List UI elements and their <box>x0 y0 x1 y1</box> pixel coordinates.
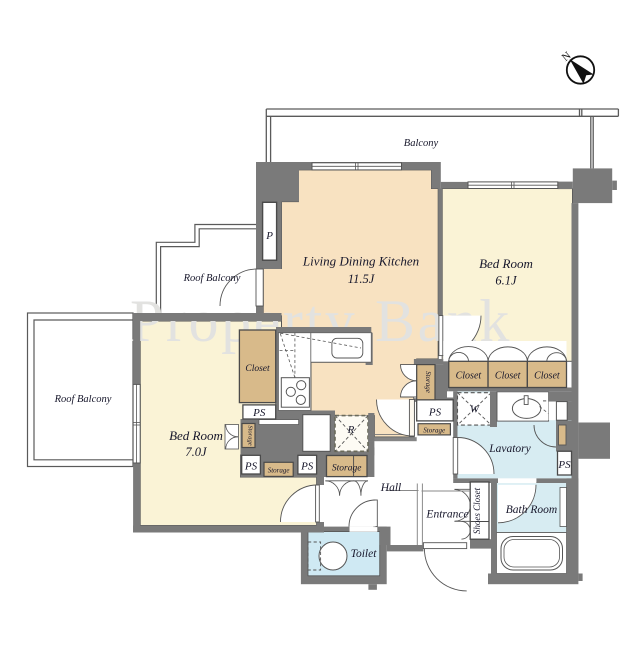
svg-text:Roof Balcony: Roof Balcony <box>183 273 241 284</box>
svg-text:Storage: Storage <box>424 371 432 393</box>
svg-text:Shoes Closet: Shoes Closet <box>472 487 482 534</box>
svg-text:PS: PS <box>244 461 258 473</box>
svg-text:Balcony: Balcony <box>404 138 439 149</box>
svg-text:PS: PS <box>428 407 442 419</box>
svg-text:W: W <box>470 404 480 416</box>
svg-text:Toilet: Toilet <box>351 548 378 560</box>
svg-text:PS: PS <box>557 459 571 471</box>
svg-text:11.5J: 11.5J <box>348 272 376 286</box>
svg-text:Closet: Closet <box>534 371 560 382</box>
svg-text:Bed Room: Bed Room <box>479 256 533 271</box>
svg-text:P: P <box>265 230 273 242</box>
svg-text:Storage: Storage <box>332 464 362 474</box>
svg-text:7.0J: 7.0J <box>185 445 208 459</box>
svg-text:Closet: Closet <box>495 371 521 382</box>
svg-text:PS: PS <box>300 461 314 473</box>
svg-text:Storage: Storage <box>247 425 254 445</box>
svg-text:Bed Room: Bed Room <box>169 428 223 443</box>
svg-text:Lavatory: Lavatory <box>488 443 531 455</box>
svg-text:Bath Room: Bath Room <box>506 504 557 516</box>
svg-text:Storage: Storage <box>268 467 290 475</box>
svg-text:Living Dining Kitchen: Living Dining Kitchen <box>302 254 419 269</box>
svg-text:PS: PS <box>252 407 266 419</box>
svg-text:Hall: Hall <box>380 482 401 494</box>
svg-text:Entrance: Entrance <box>425 509 468 521</box>
svg-text:R: R <box>347 424 355 436</box>
svg-text:6.1J: 6.1J <box>495 274 518 288</box>
svg-text:Closet: Closet <box>456 371 482 382</box>
svg-text:Roof Balcony: Roof Balcony <box>54 394 112 405</box>
svg-text:Closet: Closet <box>245 364 270 374</box>
svg-text:Storage: Storage <box>423 427 445 435</box>
